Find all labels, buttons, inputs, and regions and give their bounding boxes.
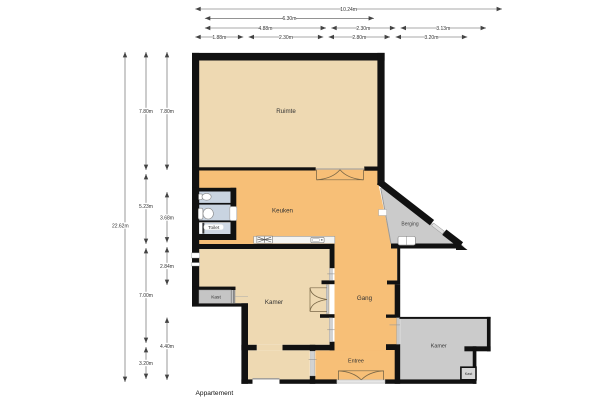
svg-text:2.30m: 2.30m — [356, 26, 370, 32]
svg-text:Entree: Entree — [348, 359, 364, 365]
svg-text:3.20m: 3.20m — [139, 361, 153, 367]
svg-text:7.80m: 7.80m — [139, 109, 153, 115]
svg-text:4.88m: 4.88m — [258, 26, 272, 32]
svg-text:3.20m: 3.20m — [424, 35, 438, 41]
svg-text:Keuken: Keuken — [272, 207, 294, 214]
svg-text:Gang: Gang — [357, 295, 373, 302]
svg-text:7.80m: 7.80m — [160, 109, 174, 115]
svg-text:Kast: Kast — [211, 294, 221, 300]
svg-text:7.00m: 7.00m — [139, 293, 153, 299]
svg-text:6.30m: 6.30m — [282, 16, 296, 22]
svg-text:4.40m: 4.40m — [160, 344, 174, 350]
svg-text:Toilet: Toilet — [208, 225, 220, 231]
svg-text:10.24m: 10.24m — [340, 7, 357, 13]
svg-text:3.13m: 3.13m — [436, 26, 450, 32]
svg-text:5.23m: 5.23m — [139, 204, 153, 210]
svg-text:Kamer: Kamer — [431, 344, 447, 350]
svg-text:2.80m: 2.80m — [352, 35, 366, 41]
svg-text:Ruimte: Ruimte — [276, 108, 296, 115]
svg-text:Kamer: Kamer — [265, 299, 283, 306]
svg-text:2.30m: 2.30m — [279, 35, 293, 41]
svg-text:Appartement: Appartement — [196, 390, 234, 397]
svg-text:22.62m: 22.62m — [112, 223, 129, 229]
svg-text:2.84m: 2.84m — [160, 264, 174, 270]
svg-text:Berging: Berging — [401, 222, 418, 228]
svg-text:1.88m: 1.88m — [212, 35, 226, 41]
svg-text:3.68m: 3.68m — [160, 215, 174, 221]
svg-text:Kast: Kast — [465, 372, 474, 376]
